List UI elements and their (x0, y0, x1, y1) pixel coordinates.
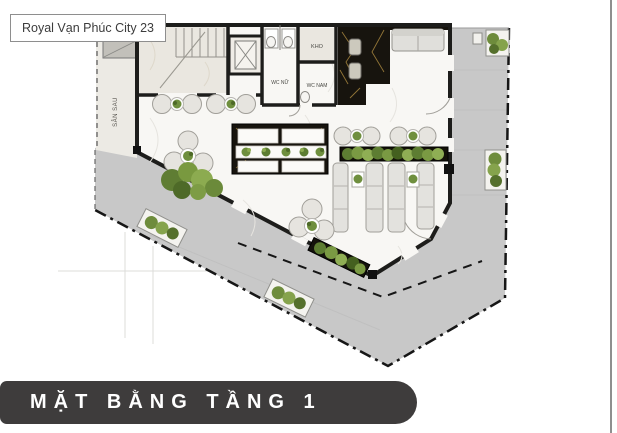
toilet-icon (267, 37, 276, 48)
wc-female-label: WC NỮ (271, 79, 289, 86)
image-title-text: Royal Vạn Phúc City 23 (22, 21, 154, 35)
elevator (229, 36, 262, 74)
planter-divider (340, 147, 448, 162)
top-sofa (392, 29, 444, 51)
sofa (333, 163, 348, 232)
sink-icon (349, 39, 361, 55)
sofa (388, 163, 405, 232)
dining-set-c (334, 127, 380, 145)
floor-plan: SÂN SAU (0, 0, 617, 433)
backyard-label: SÂN SAU (112, 97, 119, 127)
planter-box-top-right (486, 30, 509, 56)
plant-icon (409, 132, 418, 141)
wc-male-label: WC NAM (307, 83, 328, 89)
storage-room: KHO (300, 28, 334, 60)
sofa-lounge (333, 163, 434, 232)
plant-icon (354, 175, 363, 184)
screenshot-stage: Royal Vạn Phúc City 23 (0, 0, 617, 433)
plant-icon (353, 132, 362, 141)
toilet-icon (284, 37, 293, 48)
plant-icon (409, 175, 418, 184)
dining-set-d (390, 127, 436, 145)
image-title-tooltip: Royal Vạn Phúc City 23 (10, 14, 166, 42)
planter-box-right (485, 150, 506, 190)
banner-title: MẶT BẰNG TẦNG 1 (0, 391, 322, 414)
dining-set-b (207, 95, 256, 114)
sofa (366, 163, 383, 232)
dining-set-a (153, 95, 202, 114)
toilet-icon (301, 92, 310, 103)
window-edge-line (610, 0, 612, 433)
storage-label: KHO (311, 44, 324, 50)
conference-table (232, 124, 328, 174)
floor-plan-banner: MẶT BẰNG TẦNG 1 (0, 381, 417, 424)
backyard-strip: SÂN SAU (96, 40, 137, 158)
sink-icon (349, 63, 361, 79)
sofa (417, 163, 434, 229)
